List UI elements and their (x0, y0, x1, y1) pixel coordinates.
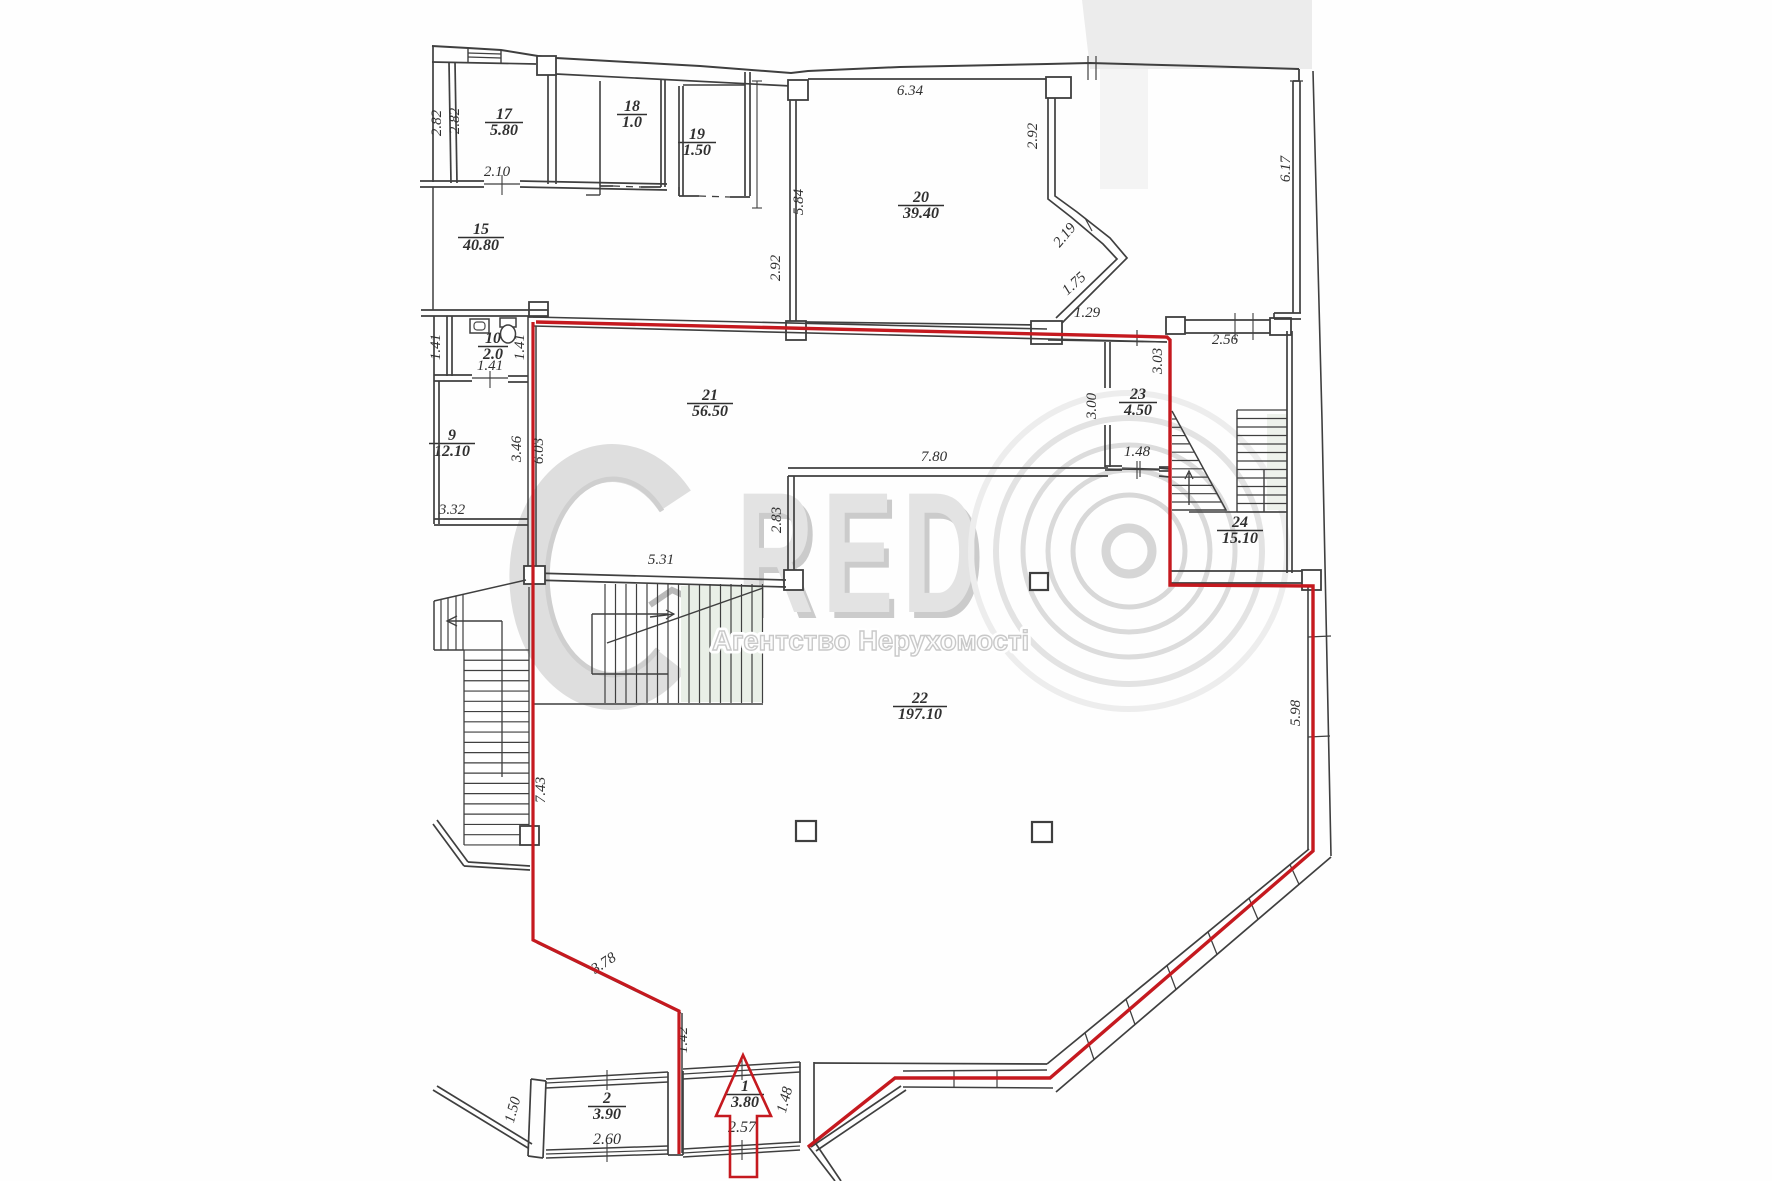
svg-text:18: 18 (624, 98, 640, 115)
svg-text:5.98: 5.98 (1288, 699, 1304, 726)
svg-text:1.48: 1.48 (1124, 444, 1151, 460)
svg-text:2.56: 2.56 (1212, 332, 1239, 348)
svg-text:2.83: 2.83 (769, 507, 785, 533)
svg-text:1.29: 1.29 (1074, 305, 1101, 321)
svg-text:22: 22 (911, 690, 928, 707)
svg-text:7.80: 7.80 (921, 449, 948, 465)
svg-text:2.92: 2.92 (768, 254, 784, 281)
svg-text:2: 2 (602, 1090, 611, 1107)
svg-text:2.92: 2.92 (1025, 122, 1041, 149)
svg-text:3.03: 3.03 (1150, 348, 1166, 375)
svg-text:39.40: 39.40 (902, 205, 939, 222)
svg-text:1.0: 1.0 (622, 114, 642, 131)
svg-text:24: 24 (1231, 514, 1248, 531)
svg-text:9: 9 (448, 427, 456, 444)
svg-text:2.82: 2.82 (429, 109, 445, 136)
svg-text:15: 15 (473, 221, 489, 238)
svg-text:4.50: 4.50 (1123, 402, 1152, 419)
svg-text:1.41: 1.41 (477, 358, 503, 374)
svg-text:3.00: 3.00 (1084, 392, 1100, 420)
svg-text:2.57: 2.57 (728, 1119, 757, 1136)
svg-text:21: 21 (701, 387, 718, 404)
svg-text:7.43: 7.43 (533, 777, 549, 803)
svg-text:3.46: 3.46 (509, 435, 525, 463)
svg-text:RED: RED (737, 457, 988, 649)
svg-text:2.10: 2.10 (484, 164, 511, 180)
svg-text:2.82: 2.82 (447, 107, 463, 134)
svg-text:56.50: 56.50 (692, 403, 728, 420)
svg-text:6.34: 6.34 (897, 83, 924, 99)
svg-text:6.17: 6.17 (1278, 154, 1294, 182)
svg-text:3.90: 3.90 (592, 1106, 621, 1123)
svg-text:197.10: 197.10 (898, 706, 942, 723)
svg-text:17: 17 (496, 106, 513, 123)
svg-text:15.10: 15.10 (1222, 530, 1258, 547)
svg-text:19: 19 (689, 126, 705, 143)
svg-text:1.41: 1.41 (512, 334, 528, 360)
svg-text:3.80: 3.80 (730, 1094, 759, 1111)
svg-text:5.31: 5.31 (648, 552, 674, 568)
svg-text:3.32: 3.32 (438, 502, 466, 518)
svg-text:1.50: 1.50 (683, 142, 711, 159)
svg-text:1.41: 1.41 (428, 334, 444, 360)
svg-text:1: 1 (741, 1078, 749, 1095)
svg-text:23: 23 (1129, 386, 1146, 403)
svg-text:20: 20 (912, 189, 929, 206)
svg-text:Агентство Нерухомості: Агентство Нерухомості (712, 625, 1029, 656)
svg-text:5.84: 5.84 (791, 188, 807, 215)
svg-text:5.80: 5.80 (490, 122, 518, 139)
svg-text:40.80: 40.80 (462, 237, 499, 254)
